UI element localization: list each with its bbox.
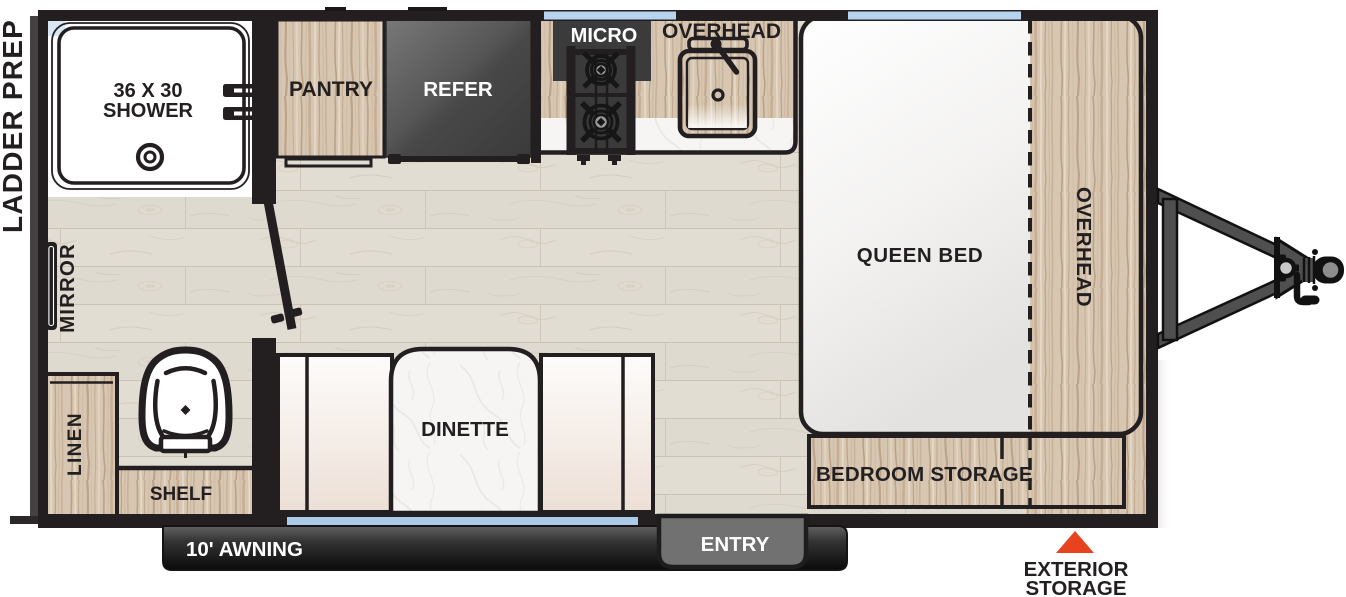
svg-text:SHOWER: SHOWER xyxy=(103,100,194,122)
svg-text:STORAGE: STORAGE xyxy=(1026,577,1127,597)
svg-text:10' AWNING: 10' AWNING xyxy=(186,538,303,561)
svg-text:MICRO: MICRO xyxy=(571,25,638,47)
svg-text:ENTRY: ENTRY xyxy=(701,533,770,556)
svg-text:MIRROR: MIRROR xyxy=(56,243,79,333)
svg-text:36 X 30: 36 X 30 xyxy=(114,80,183,102)
svg-text:LINEN: LINEN xyxy=(65,412,86,476)
svg-text:DINETTE: DINETTE xyxy=(421,418,509,441)
svg-text:SHELF: SHELF xyxy=(150,484,212,505)
svg-text:QUEEN BED: QUEEN BED xyxy=(857,244,983,267)
svg-text:REFER: REFER xyxy=(423,78,493,101)
svg-text:LADDER PREP: LADDER PREP xyxy=(0,19,28,233)
svg-text:OVERHEAD: OVERHEAD xyxy=(1072,187,1095,307)
svg-text:BEDROOM STORAGE: BEDROOM STORAGE xyxy=(816,463,1033,486)
svg-text:PANTRY: PANTRY xyxy=(289,78,373,101)
